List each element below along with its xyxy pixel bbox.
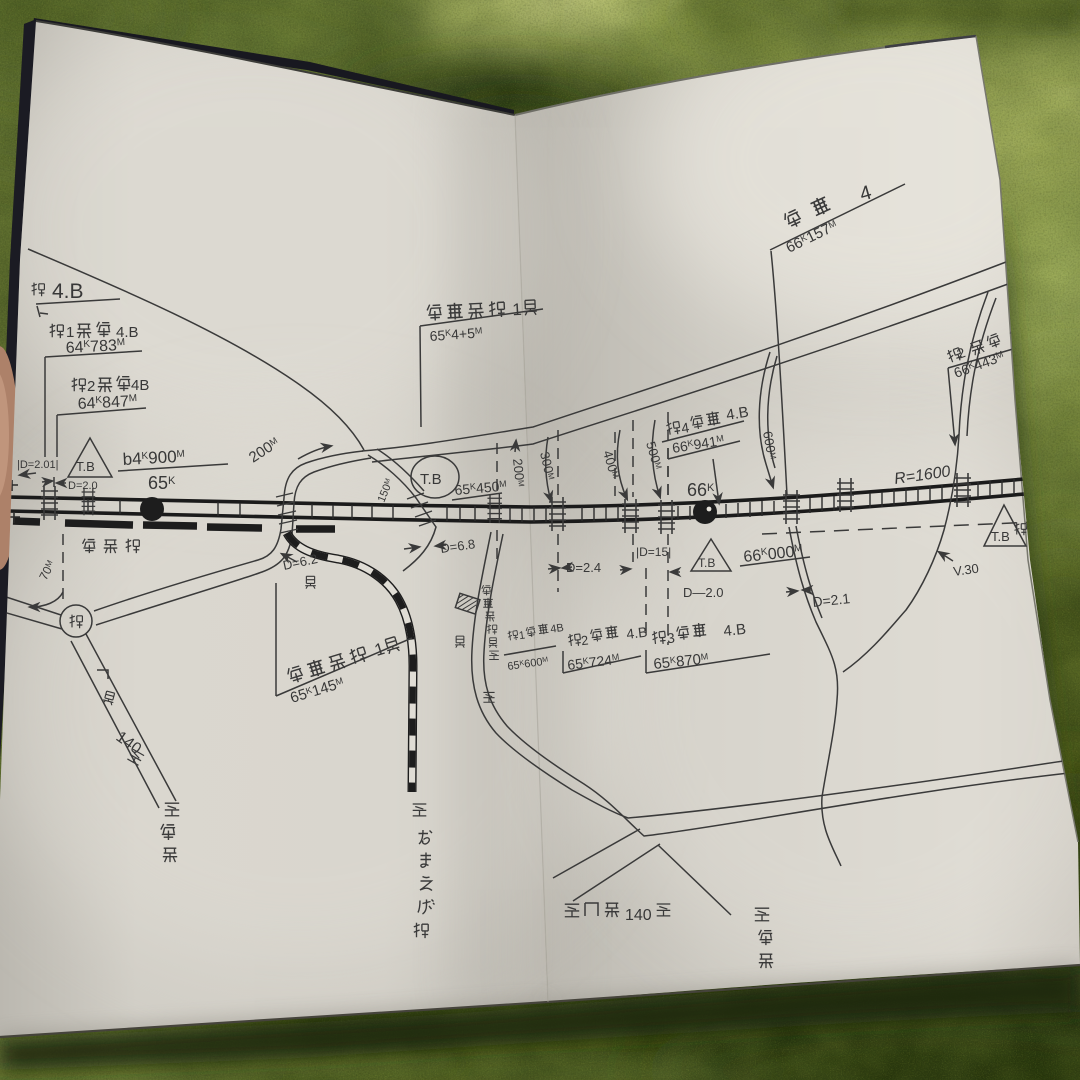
svg-text:64K847M: 64K847M (77, 393, 137, 413)
svg-text:T.B: T.B (698, 556, 715, 570)
svg-text:T.B: T.B (991, 529, 1010, 544)
svg-text:b4K900M: b4K900M (122, 447, 185, 469)
svg-text:64K783M: 64K783M (65, 337, 125, 357)
svg-text:|D=2.01|: |D=2.01| (17, 459, 59, 471)
svg-text:4.B: 4.B (725, 404, 750, 424)
svg-text:4B: 4B (131, 377, 149, 394)
svg-text:T.B: T.B (76, 459, 95, 474)
svg-text:D—2.0: D—2.0 (683, 585, 723, 600)
svg-text:4B: 4B (550, 622, 565, 636)
svg-text:1: 1 (512, 300, 522, 319)
svg-text:D=2.4: D=2.4 (566, 560, 601, 575)
svg-text:4.B: 4.B (723, 621, 747, 640)
svg-text:1: 1 (66, 324, 74, 341)
svg-text:2: 2 (87, 378, 95, 395)
svg-text:|D=15|: |D=15| (636, 545, 671, 559)
svg-text:140: 140 (625, 907, 652, 924)
svg-text:D=2.0: D=2.0 (68, 480, 98, 492)
svg-text:4.B: 4.B (625, 624, 648, 642)
svg-text:T.B: T.B (420, 471, 442, 488)
svg-text:4.B: 4.B (52, 280, 84, 303)
